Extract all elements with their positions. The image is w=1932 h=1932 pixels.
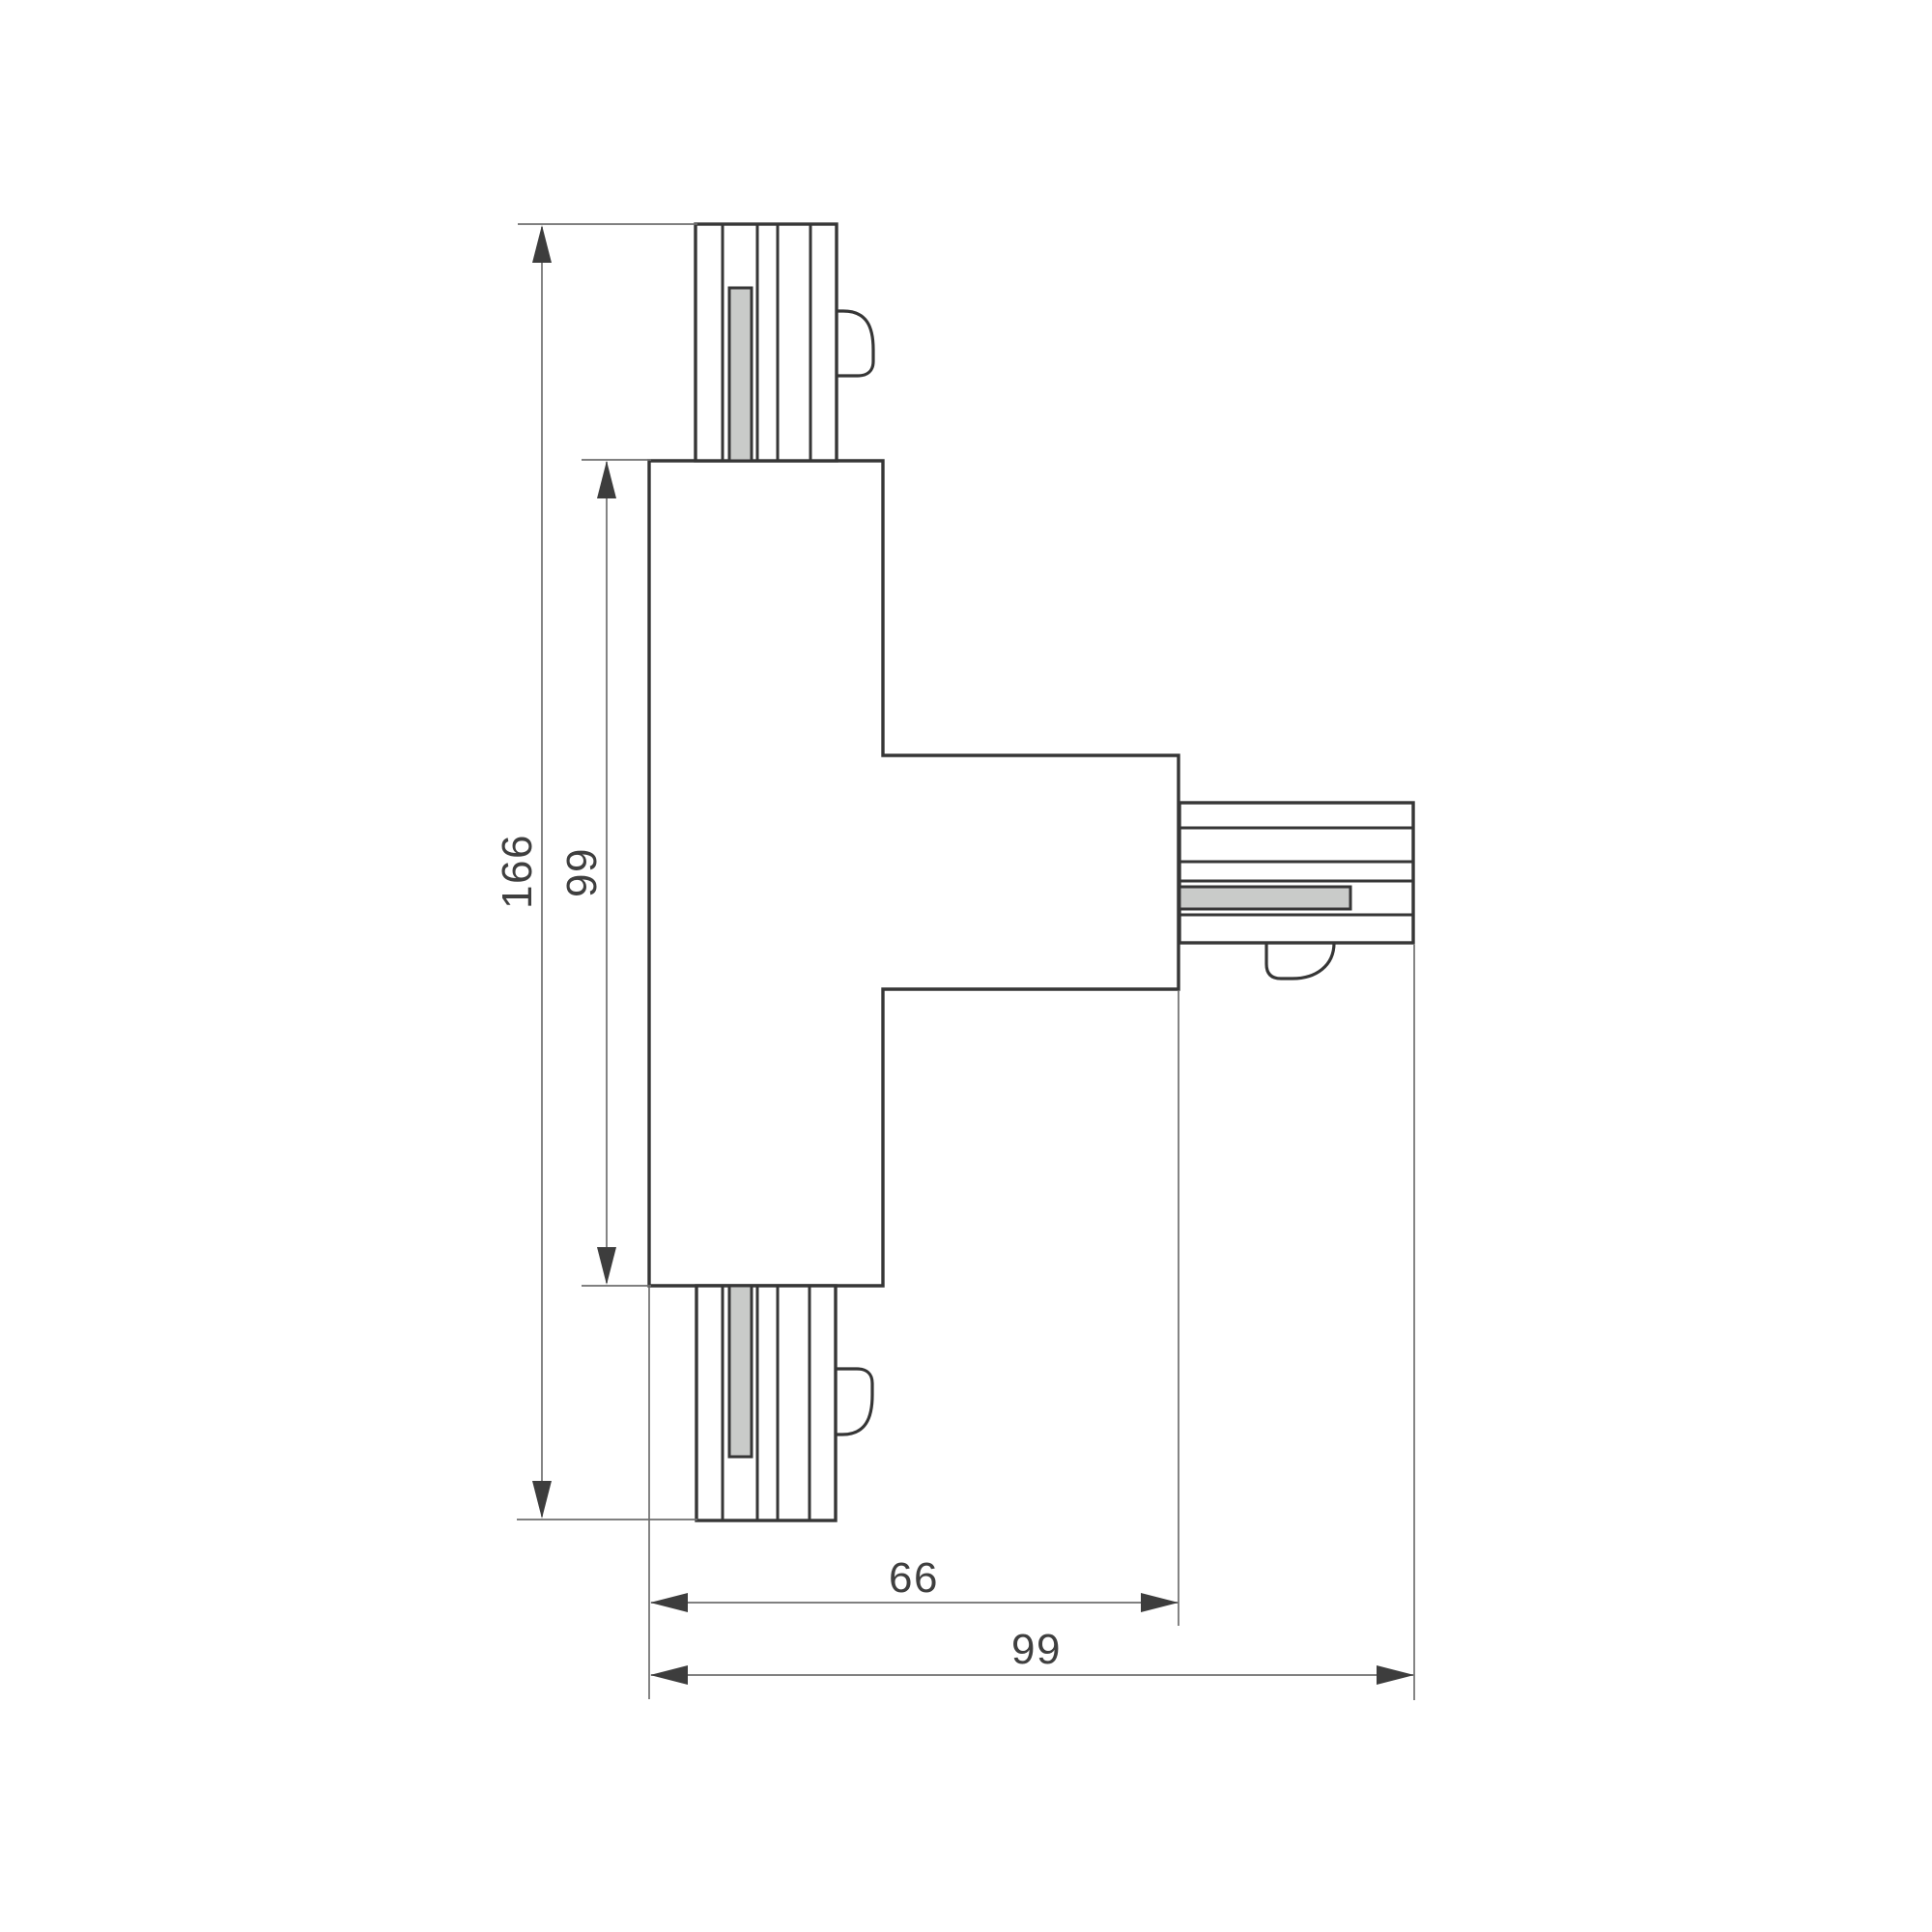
arrowhead-up-icon (597, 461, 616, 498)
arrowhead-up-icon (532, 225, 552, 263)
dimension-label: 99 (558, 847, 606, 897)
top-track-connector-group (696, 224, 873, 461)
right-track-connector-group (1179, 803, 1413, 979)
dimension-label: 66 (889, 1554, 939, 1602)
contact-strip-top (729, 288, 752, 461)
top-track-connector (696, 224, 837, 461)
t-connector-body (649, 461, 1179, 1286)
right-track-connector (1179, 803, 1413, 943)
arrowhead-down-icon (597, 1247, 616, 1285)
bottom-track-connector-group (696, 1286, 872, 1520)
drawing-page: 166 99 66 99 (0, 0, 1932, 1932)
bottom-track-connector (696, 1286, 836, 1520)
dimension-label: 166 (494, 834, 541, 909)
dimension-label: 99 (1011, 1626, 1062, 1673)
technical-drawing-canvas: 166 99 66 99 (0, 0, 1932, 1932)
arrowhead-left-icon (650, 1593, 688, 1612)
latch-tab-top-icon (837, 311, 873, 376)
contact-strip-right (1179, 887, 1350, 909)
arrowhead-right-icon (1377, 1665, 1414, 1685)
arrowhead-right-icon (1141, 1593, 1179, 1612)
arrowhead-down-icon (532, 1481, 552, 1519)
latch-tab-right-icon (1266, 943, 1334, 979)
dimension-body-height: 99 (558, 460, 651, 1286)
contact-strip-bottom (729, 1286, 752, 1457)
latch-tab-bottom-icon (836, 1369, 872, 1435)
arrowhead-left-icon (650, 1665, 688, 1685)
